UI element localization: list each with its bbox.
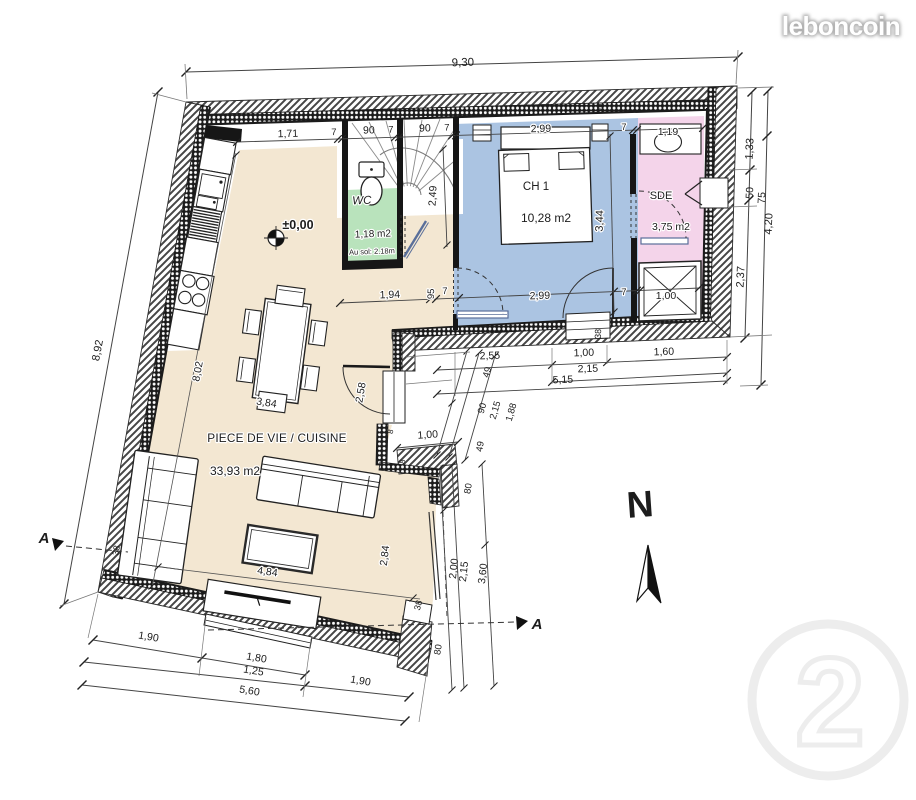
- svg-text:2,55: 2,55: [479, 350, 500, 363]
- svg-text:50: 50: [744, 187, 757, 199]
- svg-text:7: 7: [442, 286, 448, 297]
- svg-text:90: 90: [419, 122, 431, 134]
- svg-text:3,60: 3,60: [476, 563, 490, 585]
- svg-text:SDE: SDE: [650, 190, 673, 202]
- svg-text:2,84: 2,84: [378, 545, 392, 567]
- svg-text:1,18 m2: 1,18 m2: [355, 228, 392, 240]
- svg-text:PIECE DE VIE / CUISINE: PIECE DE VIE / CUISINE: [207, 431, 346, 445]
- svg-text:1,33: 1,33: [743, 138, 756, 160]
- svg-text:33,93 m2: 33,93 m2: [210, 464, 260, 478]
- svg-text:3,75 m2: 3,75 m2: [652, 221, 690, 233]
- svg-text:7: 7: [621, 122, 627, 133]
- svg-text:1,00: 1,00: [656, 290, 677, 302]
- svg-text:80: 80: [462, 482, 475, 494]
- svg-text:95: 95: [426, 288, 437, 299]
- svg-text:1,19: 1,19: [658, 126, 679, 138]
- svg-text:75: 75: [756, 192, 769, 204]
- svg-text:A: A: [531, 616, 543, 633]
- svg-text:2: 2: [795, 633, 865, 772]
- svg-text:1,00: 1,00: [417, 428, 438, 441]
- svg-text:A: A: [38, 530, 50, 547]
- svg-text:N: N: [625, 483, 655, 526]
- svg-text:2,99: 2,99: [531, 123, 552, 136]
- svg-text:Au sol: 2.18m: Au sol: 2.18m: [349, 246, 395, 257]
- svg-text:5,15: 5,15: [552, 374, 573, 387]
- svg-text:±0,00: ±0,00: [282, 218, 313, 232]
- svg-text:WC: WC: [352, 195, 372, 208]
- svg-text:38: 38: [597, 103, 606, 113]
- svg-text:leboncoin: leboncoin: [782, 11, 900, 41]
- svg-text:10,28 m2: 10,28 m2: [521, 211, 571, 225]
- svg-text:38: 38: [593, 329, 603, 339]
- svg-text:7: 7: [444, 122, 450, 133]
- svg-text:3,44: 3,44: [594, 210, 607, 232]
- svg-text:7: 7: [388, 124, 394, 135]
- svg-text:9,30: 9,30: [452, 57, 475, 70]
- svg-text:1,60: 1,60: [653, 346, 674, 359]
- svg-text:80: 80: [432, 644, 445, 656]
- svg-text:49: 49: [474, 440, 487, 452]
- svg-text:1,71: 1,71: [278, 128, 299, 141]
- svg-text:1,00: 1,00: [573, 347, 594, 360]
- svg-text:4,20: 4,20: [762, 213, 775, 235]
- svg-text:90: 90: [363, 124, 375, 136]
- svg-text:2,15: 2,15: [457, 561, 471, 583]
- svg-text:1,94: 1,94: [379, 289, 400, 302]
- svg-text:7: 7: [331, 127, 337, 138]
- svg-text:7: 7: [621, 287, 627, 298]
- svg-text:2,37: 2,37: [734, 266, 747, 288]
- svg-text:CH 1: CH 1: [523, 181, 549, 193]
- svg-text:2,99: 2,99: [529, 290, 550, 303]
- svg-text:2,15: 2,15: [577, 363, 598, 376]
- svg-text:2,49: 2,49: [426, 185, 439, 206]
